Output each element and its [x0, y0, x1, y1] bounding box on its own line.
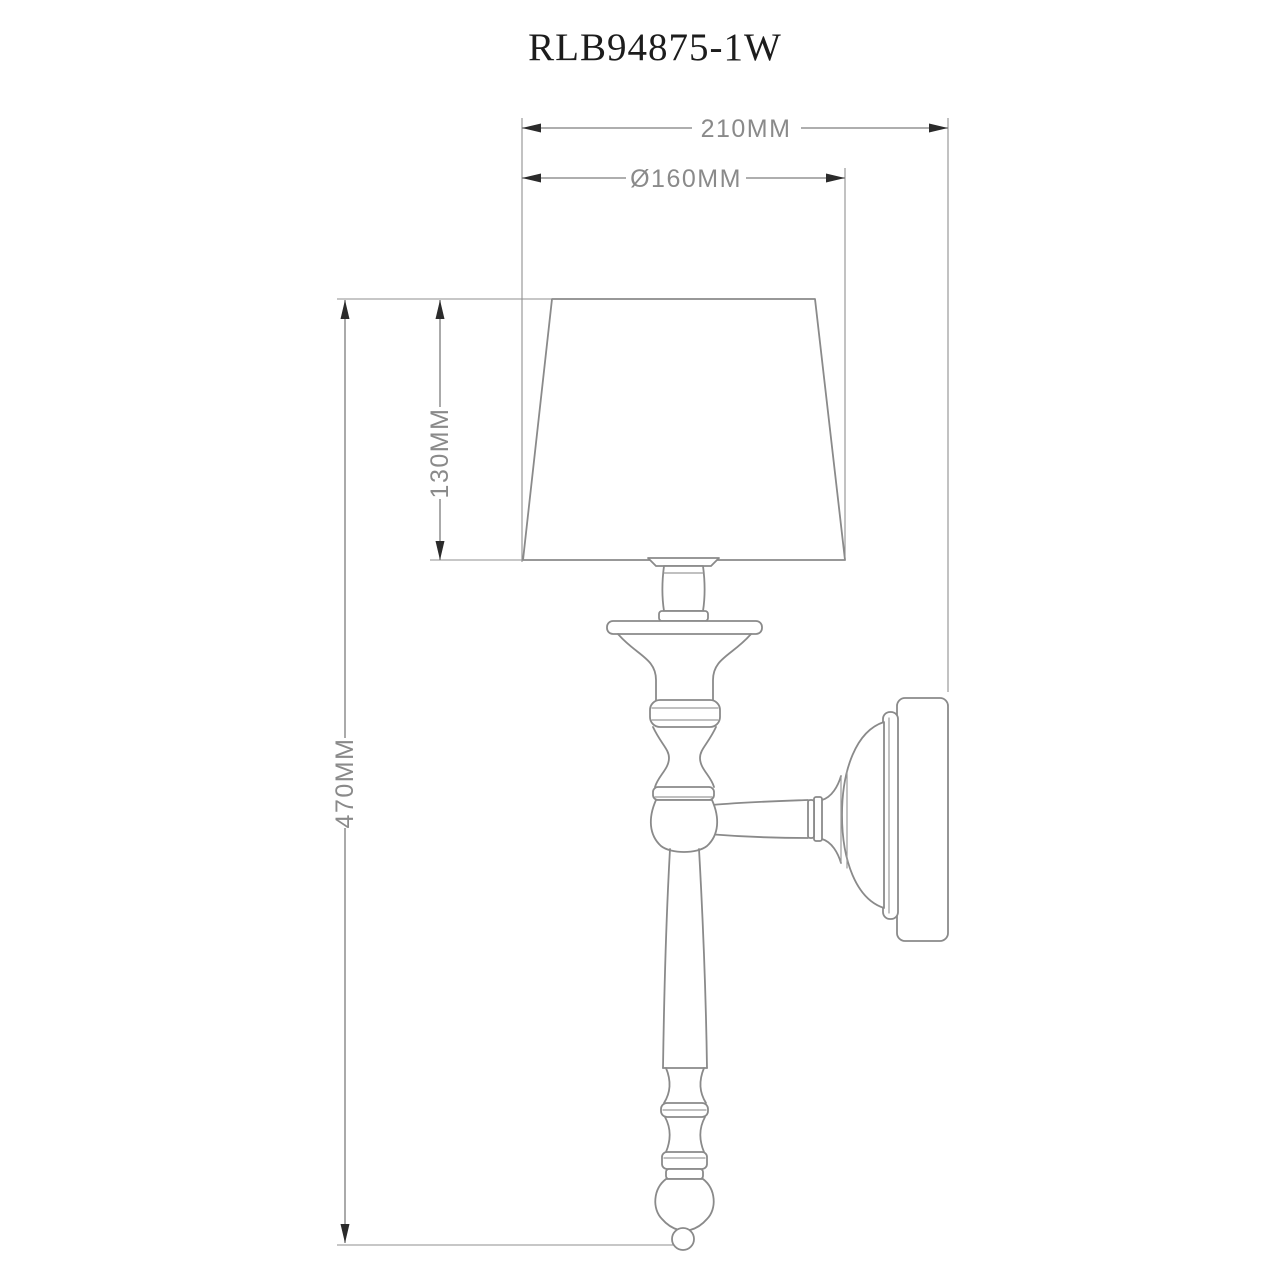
dim-label-shade-diameter: Ø160MM [630, 165, 742, 193]
wall-mount-plate [897, 698, 948, 941]
technical-drawing-page: RLB94875-1W 210MM Ø160MM 130MM 470MM [0, 0, 1280, 1280]
sconce-drawing [523, 299, 948, 1250]
stem-neck-right [700, 1068, 706, 1103]
stem-neck-left [665, 1117, 670, 1152]
sconce-dimension-diagram: RLB94875-1W 210MM Ø160MM 130MM 470MM [0, 0, 1280, 1280]
arm-bottom-line [707, 834, 808, 838]
ball-joint [651, 800, 717, 852]
dim-label-overall-height: 470MM [331, 738, 359, 829]
finial-ball [672, 1228, 694, 1250]
arm-collar [808, 800, 814, 838]
dim-label-shade-height: 130MM [426, 408, 454, 499]
stem-neck-right [700, 727, 716, 787]
cup-trumpet-left [618, 634, 656, 700]
stem-collar-thin [653, 787, 714, 800]
finial-urn [655, 1179, 713, 1230]
arrow-left-icon [522, 124, 541, 133]
dim-label-overall-width: 210MM [701, 115, 792, 143]
dimension-arrows [341, 124, 949, 1244]
stem-neck-right [700, 1117, 705, 1152]
stem-right-line [699, 849, 707, 1068]
stem-collar [650, 700, 720, 727]
arm-trumpet-top [822, 776, 841, 800]
arrow-right-icon [826, 174, 845, 183]
stem-neck-left [653, 727, 669, 787]
wall-mount-dome [842, 722, 884, 908]
stem-band [662, 1152, 707, 1169]
stem-neck-left [664, 1068, 670, 1103]
arm-top-line [712, 800, 808, 805]
dimension-lines [345, 128, 948, 1243]
socket-flange [659, 611, 708, 621]
socket-cap [648, 558, 719, 566]
arrow-left-icon [522, 174, 541, 183]
cup-trumpet-right [713, 634, 751, 700]
drip-plate [607, 621, 762, 634]
extension-lines [337, 118, 948, 1245]
arm-trumpet-bottom [822, 839, 841, 863]
arrow-up-icon [436, 300, 445, 319]
lamp-shade [523, 299, 845, 560]
stem-step [666, 1169, 703, 1179]
arrow-right-icon [929, 124, 948, 133]
arm-collar [814, 797, 822, 841]
stem-left-line [663, 849, 670, 1068]
arrow-down-icon [341, 1224, 350, 1243]
drawing-title: RLB94875-1W [528, 26, 782, 69]
arrow-down-icon [436, 541, 445, 560]
arrow-up-icon [341, 300, 350, 319]
wall-mount-band [883, 712, 898, 919]
